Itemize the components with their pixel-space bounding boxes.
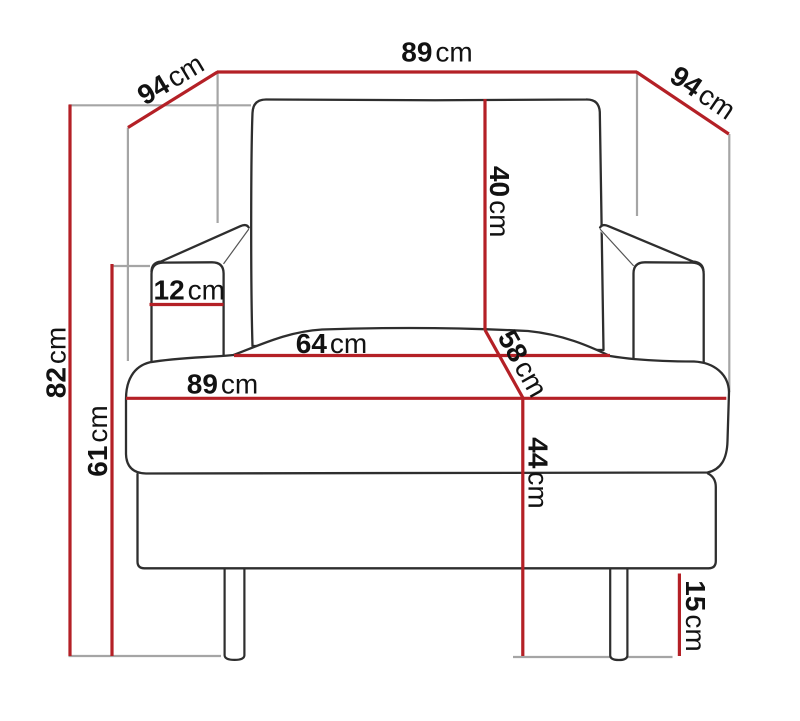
svg-text:44cm: 44cm — [523, 437, 554, 508]
svg-text:12cm: 12cm — [154, 275, 225, 306]
svg-text:15cm: 15cm — [680, 580, 711, 651]
svg-text:40cm: 40cm — [484, 166, 515, 237]
svg-text:82cm: 82cm — [41, 327, 72, 398]
svg-text:64cm: 64cm — [296, 328, 367, 359]
svg-text:89cm: 89cm — [187, 369, 258, 400]
svg-text:89cm: 89cm — [401, 37, 472, 68]
svg-text:61cm: 61cm — [82, 405, 113, 476]
